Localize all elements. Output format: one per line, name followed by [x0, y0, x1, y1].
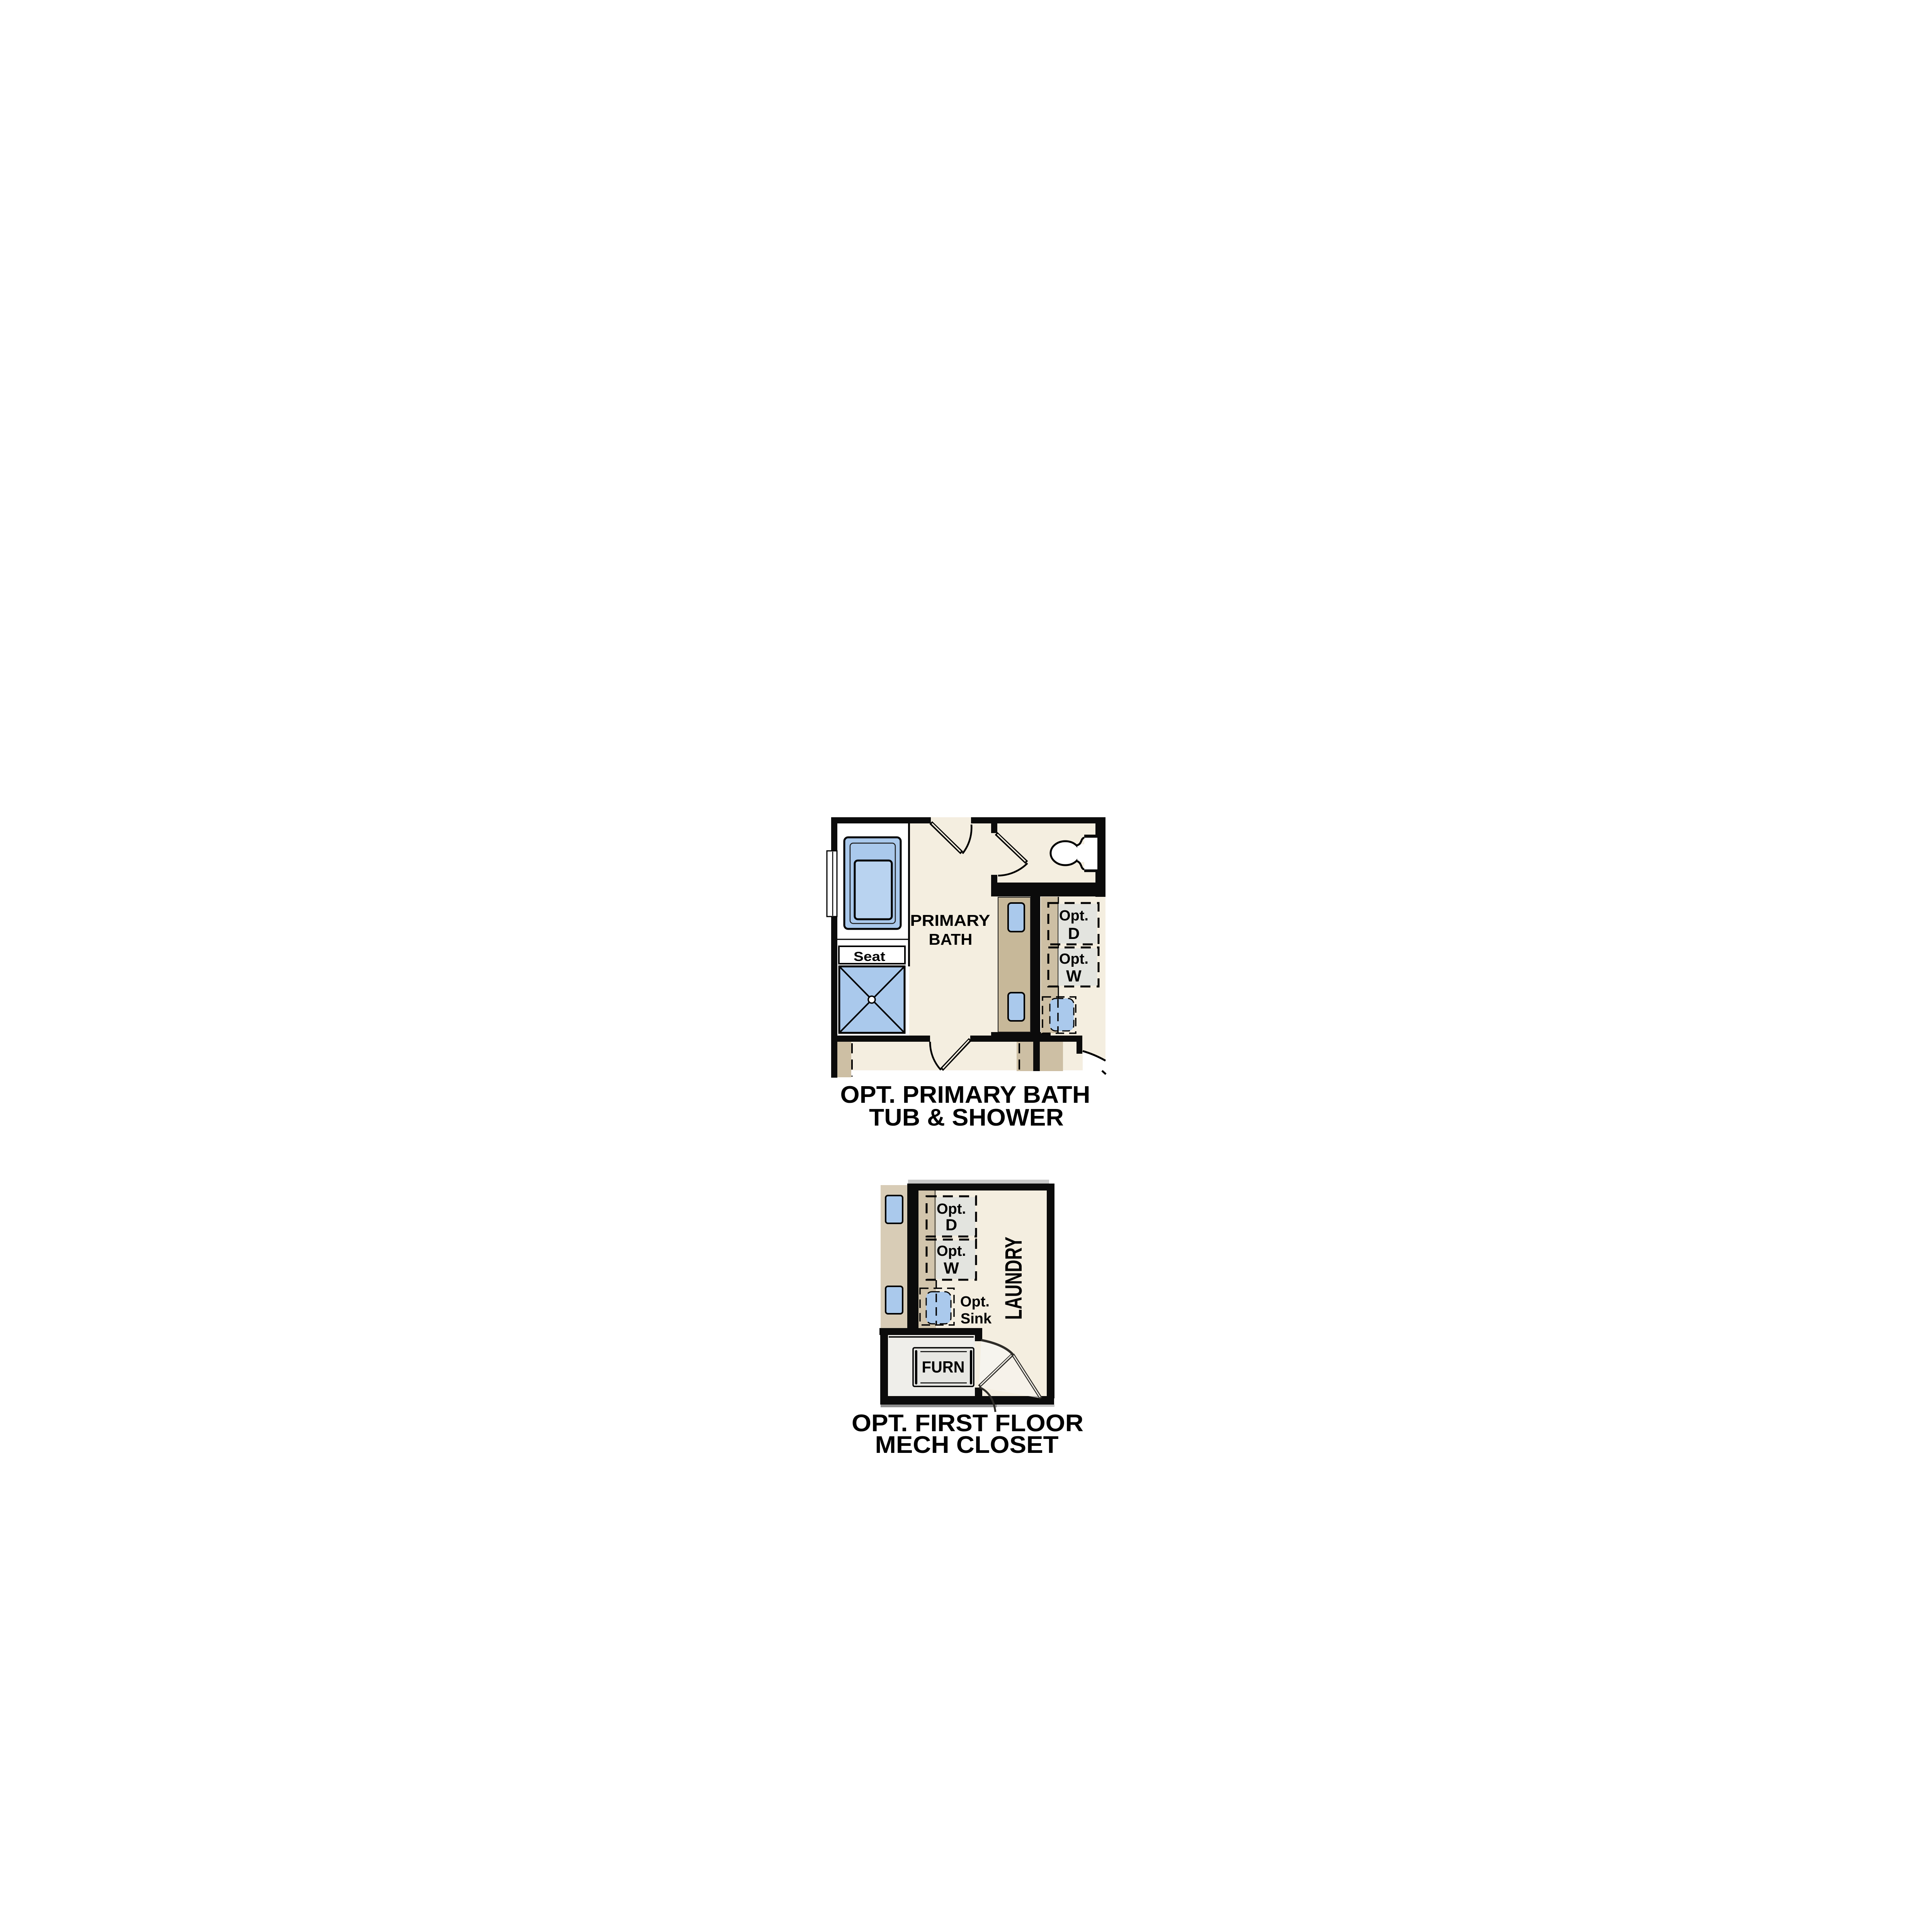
svg-text:Seat: Seat	[854, 949, 885, 964]
svg-text:D: D	[946, 1216, 957, 1234]
svg-text:D: D	[1068, 924, 1080, 942]
svg-text:Opt.: Opt.	[1059, 951, 1088, 967]
svg-text:W: W	[1066, 967, 1082, 985]
svg-text:LAUNDRY: LAUNDRY	[1000, 1237, 1027, 1320]
svg-text:FURN: FURN	[922, 1358, 965, 1376]
svg-text:TUB & SHOWER: TUB & SHOWER	[869, 1104, 1064, 1131]
svg-text:W: W	[944, 1259, 959, 1277]
svg-text:Opt.: Opt.	[937, 1201, 966, 1217]
svg-text:Opt.: Opt.	[937, 1243, 966, 1259]
svg-text:PRIMARY: PRIMARY	[910, 912, 990, 929]
svg-text:MECH CLOSET: MECH CLOSET	[875, 1432, 1059, 1458]
svg-text:Opt.: Opt.	[960, 1294, 990, 1310]
svg-text:Opt.: Opt.	[1059, 908, 1088, 924]
svg-text:BATH: BATH	[929, 930, 973, 948]
svg-text:Sink: Sink	[961, 1311, 992, 1327]
